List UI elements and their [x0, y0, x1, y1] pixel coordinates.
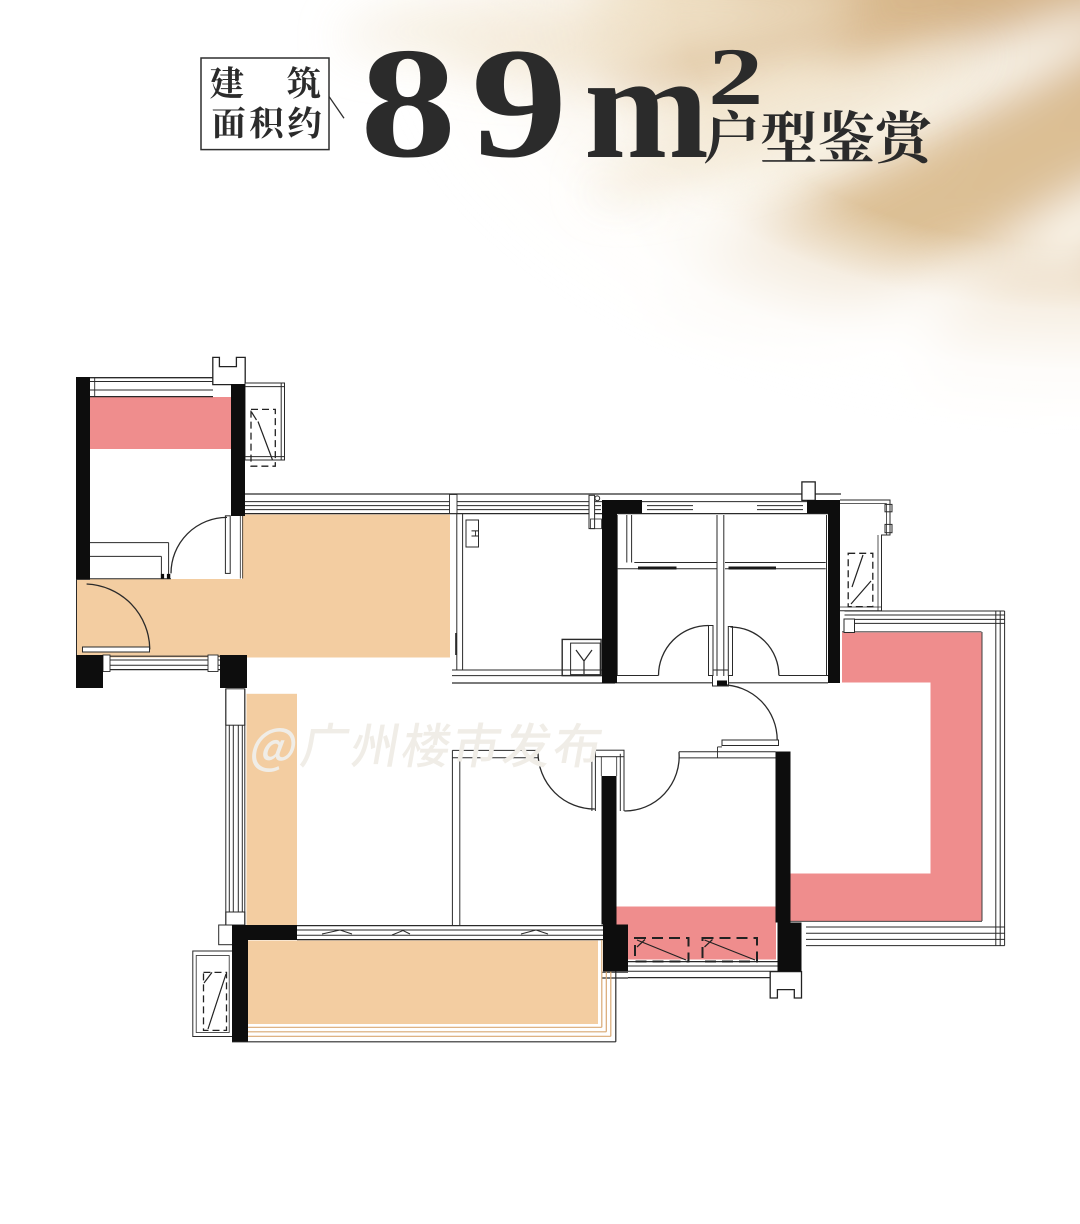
svg-text:H: H: [469, 530, 481, 538]
svg-text:2: 2: [708, 32, 763, 123]
svg-text:m: m: [584, 24, 709, 190]
svg-text:89: 89: [360, 16, 582, 191]
